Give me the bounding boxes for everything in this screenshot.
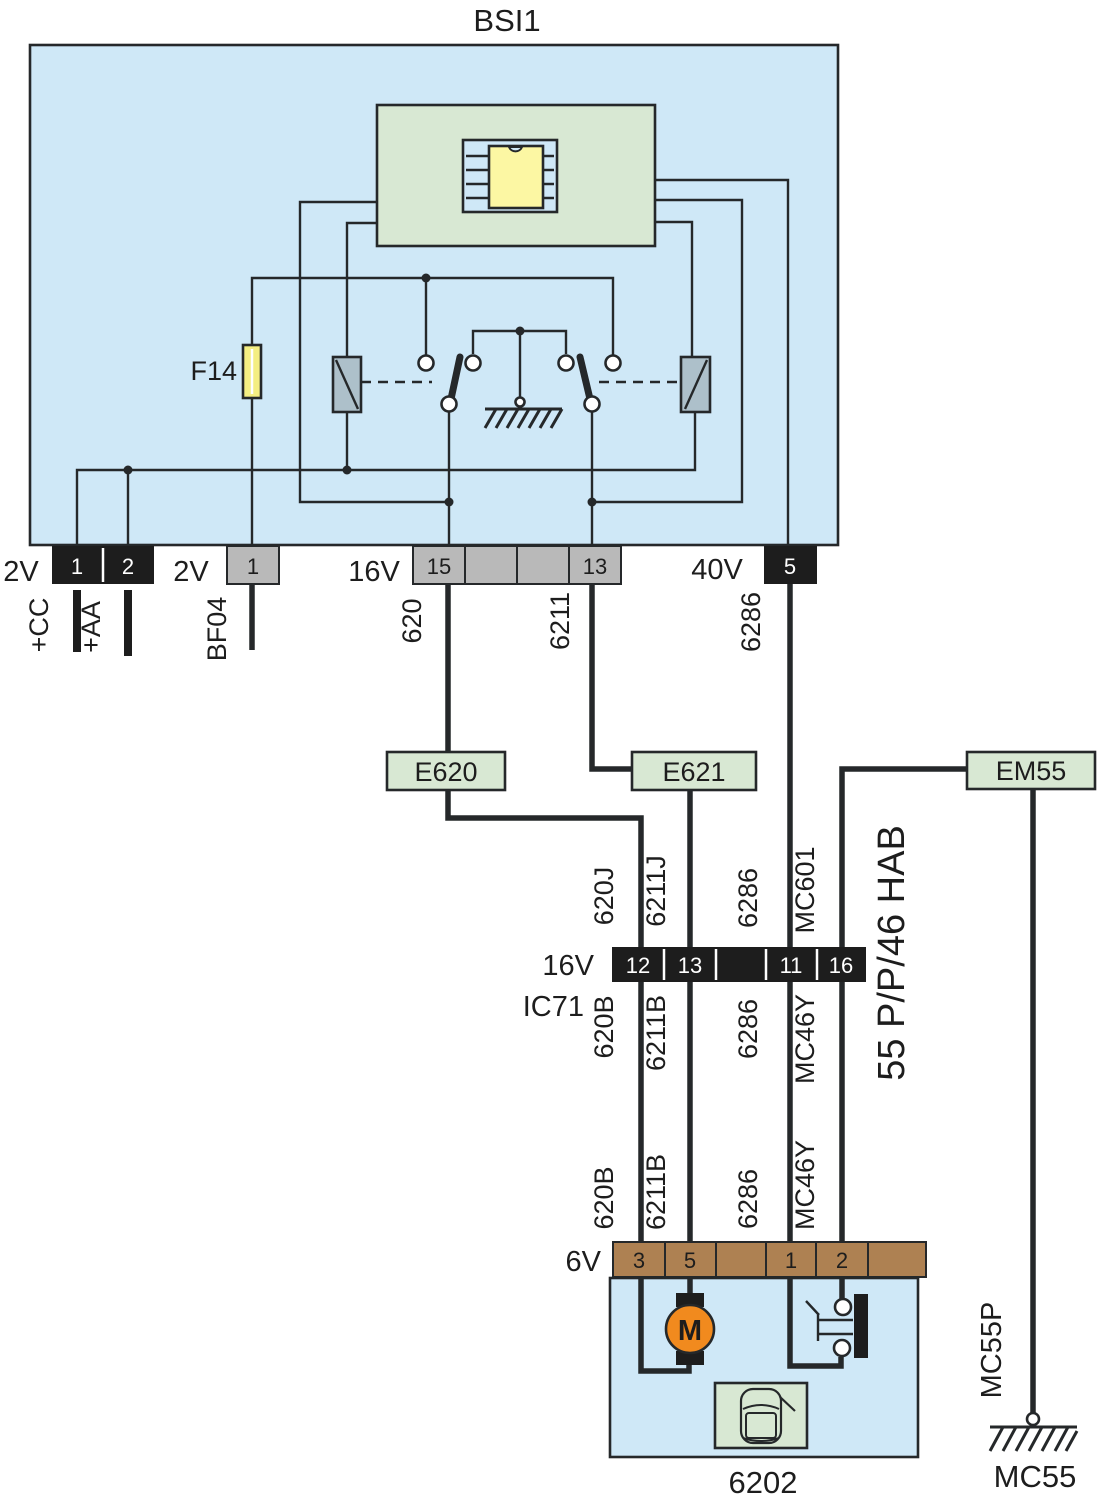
wire-label-mc601: MC601 [790,846,820,933]
wire-label-mc46y-b: MC46Y [790,1140,820,1230]
ground-terminal [516,398,525,407]
wire-label-6211j: 6211J [641,855,671,927]
ground-mc55: MC55 [990,1413,1077,1494]
pin-5: 5 [784,554,796,579]
pin-1-bf04: 1 [247,554,259,579]
node [422,274,431,283]
ground-hatch [990,1427,1077,1451]
wire-label-620b-a: 620B [589,995,619,1058]
wire-label-aa: +AA [76,601,106,653]
ic71-name: IC71 [523,991,584,1023]
wire-label-hab: 55 P/P/46 HAB [871,825,913,1081]
node [588,498,597,507]
wire-label-620: 620 [397,598,427,643]
conn-6v-label: 6V [566,1246,602,1278]
component-6202: 6V 3 5 1 2 M [566,1242,926,1500]
wire-label-6286-c: 6286 [733,999,763,1059]
splice-e621: E621 [632,752,756,790]
component-id: 6202 [729,1465,798,1500]
wire-label-620b-b: 620B [589,1166,619,1229]
splice-label: E621 [662,757,725,787]
pin-1: 1 [71,554,83,579]
pin-5: 5 [684,1248,696,1273]
chip-icon [463,140,557,212]
fuse-label: F14 [190,356,237,386]
node [516,327,525,336]
ic71-conn-label: 16V [542,950,594,982]
contact [559,356,574,371]
car-pictogram [715,1383,807,1448]
pin-2: 2 [122,554,134,579]
connector-40v-label: 40V [691,554,743,586]
pin-16: 16 [829,953,853,978]
conn-6v-strip [613,1242,926,1277]
pin-1: 1 [785,1248,797,1273]
contact [606,356,621,371]
wire-label-6211b-a: 6211B [641,995,671,1071]
ground-label: MC55 [994,1459,1077,1494]
motor-letter: M [678,1315,702,1347]
wire-label-6211: 6211 [545,592,575,650]
pin-3: 3 [633,1248,645,1273]
splice-e620: E620 [387,752,505,790]
contact [419,356,434,371]
wire-label-620j: 620J [589,867,619,926]
contact-common [442,397,457,412]
wire-label-mc46y-a: MC46Y [790,994,820,1084]
bsi-title: BSI1 [473,3,540,38]
switch-striker-bar [854,1294,868,1358]
contact [835,1299,851,1315]
splice-em55: EM55 [967,752,1095,789]
wire-label-bf04: BF04 [202,597,232,662]
bsi-unit: BSI1 [30,3,838,546]
pin-15: 15 [427,554,451,579]
wire-label-cc: +CC [24,598,54,653]
pin-13: 13 [583,554,607,579]
wiring-diagram: BSI1 [0,0,1099,1500]
wire-label-6211b-b: 6211B [641,1154,671,1230]
wire-label-6286-b: 6286 [733,868,763,928]
node [445,498,454,507]
wire-stub-aa [124,590,132,656]
contact [834,1340,850,1356]
connector-2v2-label: 2V [173,556,209,588]
node [124,466,133,475]
wire-label-mc55p: MC55P [976,1302,1008,1399]
wire-label-6286-a: 6286 [736,592,766,652]
wire-label-6286-d: 6286 [733,1169,763,1229]
splice-label: EM55 [996,756,1067,786]
pin-12: 12 [626,953,650,978]
contact-common [585,397,600,412]
chip-body [489,146,543,208]
contact [466,356,481,371]
node [343,466,352,475]
pin-2: 2 [836,1248,848,1273]
ground-terminal [1027,1413,1039,1425]
wire-6211-upper [592,584,632,769]
chip-notch [509,147,522,151]
pin-13: 13 [678,953,702,978]
splice-label: E620 [414,757,477,787]
pin-11: 11 [780,953,803,978]
connector-16v-label: 16V [348,556,400,588]
connector-2v-label: 2V [3,556,39,588]
